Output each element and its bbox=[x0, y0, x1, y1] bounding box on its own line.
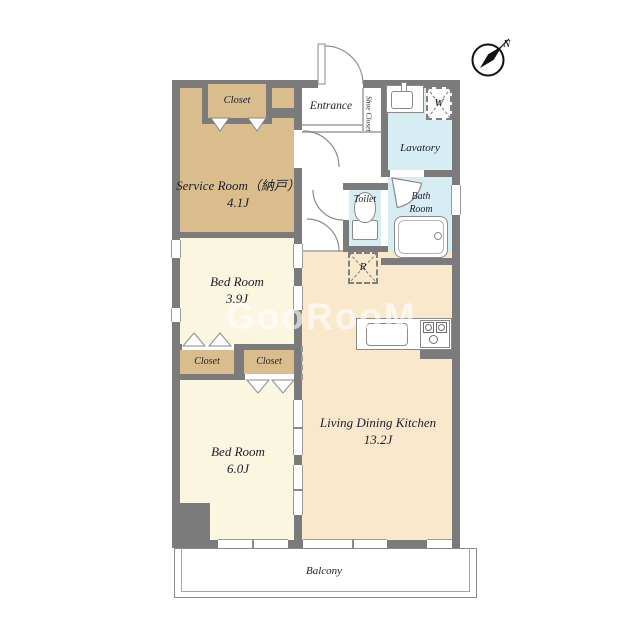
toilet-tank bbox=[352, 220, 378, 240]
window bbox=[451, 185, 461, 215]
entrance-step-line bbox=[302, 124, 362, 126]
window bbox=[171, 240, 181, 258]
wall bbox=[343, 183, 388, 190]
wall bbox=[294, 268, 302, 286]
watermark: GooRooM bbox=[226, 296, 417, 338]
bed-room-2-size: 6.0J bbox=[211, 461, 265, 478]
hallway-floor bbox=[302, 183, 343, 252]
wall bbox=[234, 344, 244, 380]
bath-room-label: Bath Room bbox=[399, 190, 443, 216]
entrance-doorway bbox=[318, 80, 363, 88]
entrance-door-arc bbox=[325, 46, 363, 84]
wall bbox=[294, 380, 302, 400]
wall bbox=[234, 344, 302, 350]
entrance-door-leaf bbox=[318, 44, 325, 84]
open-boundary-dashed bbox=[301, 346, 303, 380]
balcony-label: Balcony bbox=[306, 564, 342, 578]
ldk-name: Living Dining Kitchen bbox=[320, 415, 436, 432]
service-room-label: Service Room（納戸） 4.1J bbox=[176, 178, 300, 212]
wall bbox=[424, 170, 452, 177]
column bbox=[172, 503, 210, 548]
ldk-threshold-line bbox=[302, 250, 343, 252]
wall bbox=[381, 170, 390, 177]
wall bbox=[387, 540, 427, 548]
wall bbox=[172, 232, 302, 238]
lavatory-label: Lavatory bbox=[400, 141, 440, 155]
wall bbox=[288, 540, 303, 548]
entrance-label: Entrance bbox=[310, 99, 352, 114]
washer-label: W bbox=[434, 96, 443, 110]
service-room-size: 4.1J bbox=[176, 195, 300, 212]
bed-room-1-name: Bed Room bbox=[210, 274, 264, 291]
bed-room-2-name: Bed Room bbox=[211, 444, 265, 461]
compass-north-text: N bbox=[502, 38, 511, 50]
wall bbox=[452, 215, 460, 548]
window bbox=[171, 308, 181, 322]
stove-burner bbox=[429, 335, 438, 344]
shoe-closet-label: Shoe Closet bbox=[364, 92, 382, 136]
washbasin-bowl bbox=[391, 91, 413, 109]
wall bbox=[294, 515, 302, 540]
wall bbox=[381, 258, 452, 265]
closet-mid-right-label: Closet bbox=[256, 355, 282, 368]
closet-top-label: Closet bbox=[224, 94, 251, 108]
window-tick bbox=[293, 489, 303, 491]
wall bbox=[172, 258, 180, 308]
floor-plan: N Closet Service Room（納戸） 4.1J Entrance … bbox=[0, 0, 640, 640]
compass-icon bbox=[473, 39, 510, 76]
service-room-name: Service Room（納戸） bbox=[176, 178, 300, 195]
ldk-size: 13.2J bbox=[320, 432, 436, 449]
closet-mid-left-label: Closet bbox=[194, 355, 220, 368]
toilet-label: Toilet bbox=[354, 193, 376, 206]
wall bbox=[294, 455, 302, 465]
wall bbox=[172, 344, 182, 350]
wall bbox=[172, 80, 180, 240]
wall bbox=[420, 350, 452, 359]
stove-burner bbox=[438, 324, 445, 331]
stove-burner bbox=[425, 324, 432, 331]
bed-room-2-label: Bed Room 6.0J bbox=[211, 444, 265, 478]
window bbox=[293, 244, 303, 268]
fridge-label: R bbox=[360, 260, 367, 274]
bathtub-drain bbox=[434, 232, 442, 240]
wall bbox=[272, 108, 294, 118]
ldk-label: Living Dining Kitchen 13.2J bbox=[320, 415, 436, 449]
wall bbox=[452, 80, 460, 185]
wall bbox=[294, 80, 302, 130]
window-tick bbox=[293, 427, 303, 429]
washbasin-faucet bbox=[401, 82, 407, 92]
